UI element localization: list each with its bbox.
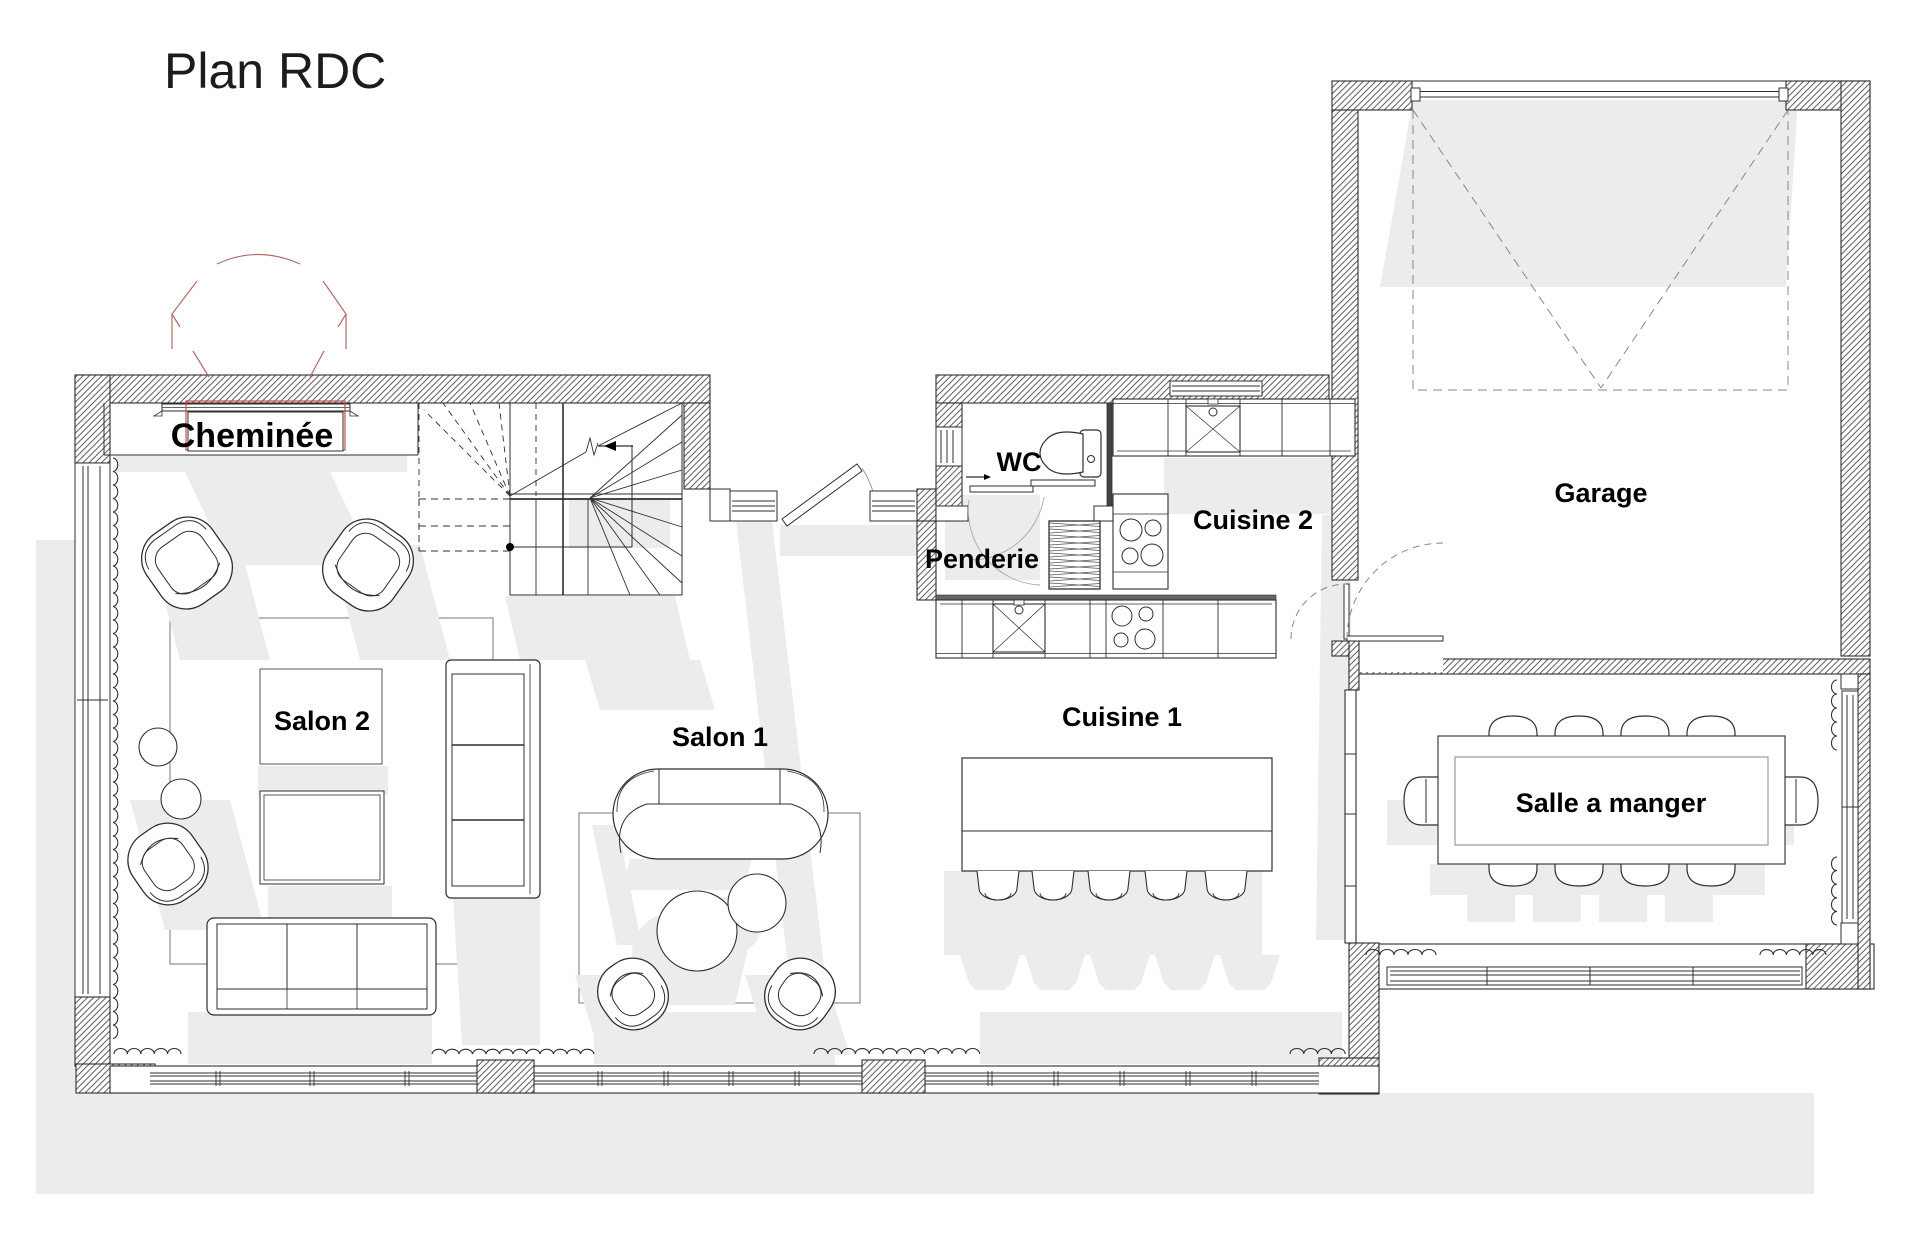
svg-text:Penderie: Penderie: [925, 544, 1039, 574]
svg-text:WC: WC: [997, 447, 1042, 477]
svg-text:Salon 2: Salon 2: [274, 706, 370, 736]
svg-text:Salon 1: Salon 1: [672, 722, 768, 752]
svg-text:Garage: Garage: [1554, 478, 1647, 508]
svg-text:Cuisine 2: Cuisine 2: [1193, 505, 1313, 535]
svg-text:Salle a manger: Salle a manger: [1516, 788, 1707, 818]
svg-text:Cuisine 1: Cuisine 1: [1062, 702, 1182, 732]
svg-text:Cheminée: Cheminée: [171, 417, 334, 455]
svg-text:Plan RDC: Plan RDC: [164, 43, 386, 99]
